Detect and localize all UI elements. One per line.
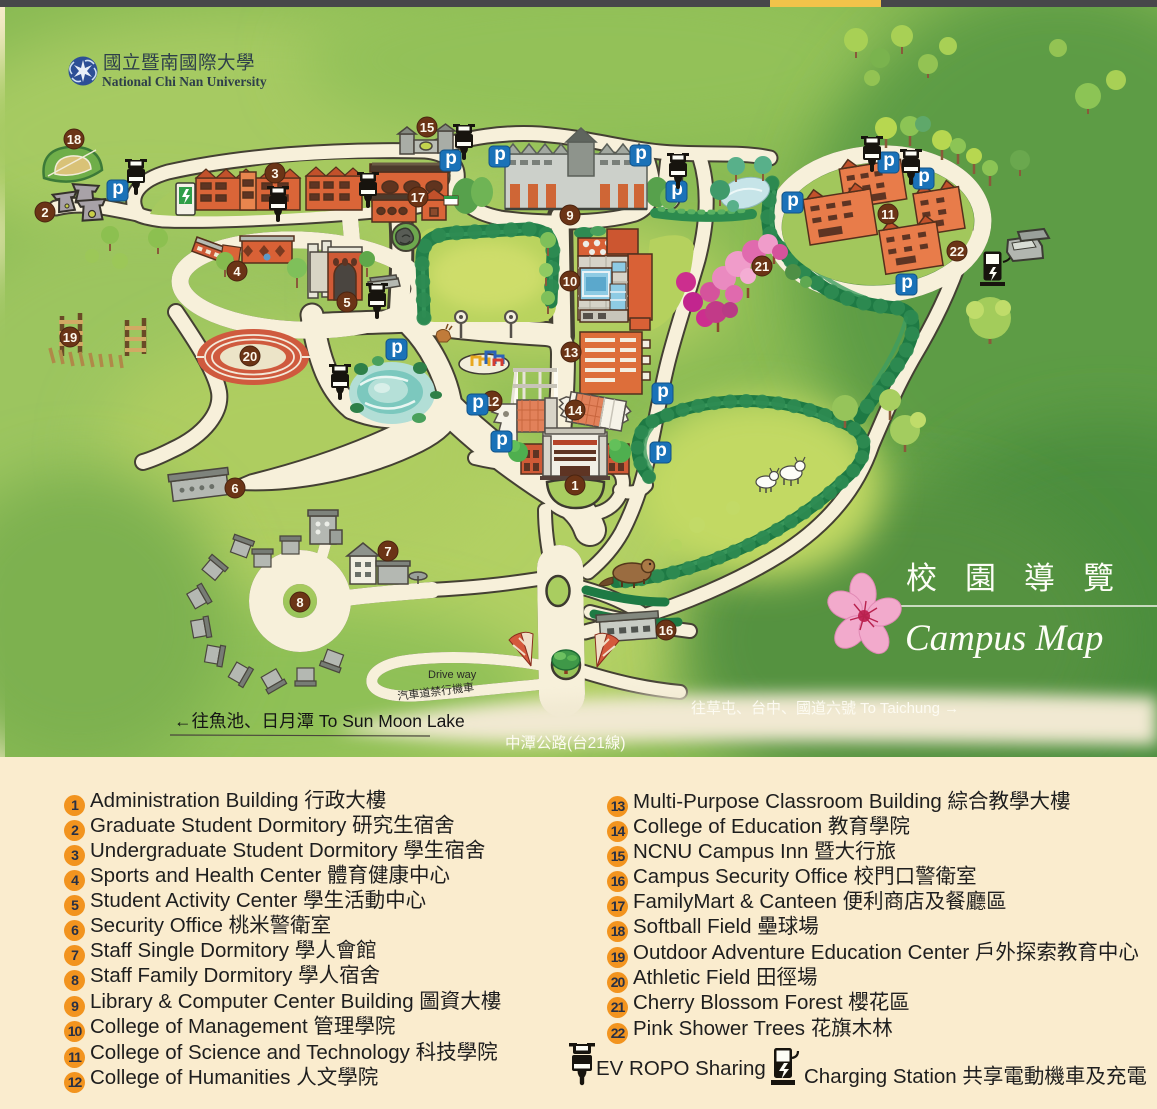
svg-text:p: p: [496, 429, 508, 450]
svg-text:20: 20: [243, 349, 257, 364]
svg-text:10: 10: [563, 274, 577, 289]
svg-text:p: p: [883, 150, 895, 171]
svg-text:17: 17: [411, 190, 425, 205]
svg-text:21: 21: [755, 259, 769, 274]
svg-text:p: p: [112, 178, 124, 199]
svg-text:7: 7: [384, 544, 391, 559]
svg-text:p: p: [494, 144, 506, 165]
svg-text:6: 6: [231, 481, 238, 496]
svg-text:p: p: [787, 190, 799, 211]
svg-text:16: 16: [659, 623, 673, 638]
svg-text:18: 18: [67, 132, 81, 147]
svg-text:p: p: [445, 148, 457, 169]
svg-text:p: p: [635, 143, 647, 164]
svg-text:往草屯、台中、國道六號 To Taichung →: 往草屯、台中、國道六號 To Taichung →: [691, 700, 959, 717]
svg-text:校園導覽: 校園導覽: [906, 561, 1142, 596]
svg-text:3: 3: [271, 166, 278, 181]
svg-text:2: 2: [41, 205, 48, 220]
svg-text:15: 15: [420, 120, 434, 135]
svg-text:Campus Map: Campus Map: [905, 618, 1103, 659]
svg-text:9: 9: [566, 208, 573, 223]
svg-text:國立暨南國際大學: 國立暨南國際大學: [103, 53, 255, 74]
svg-text:19: 19: [63, 330, 77, 345]
svg-text:14: 14: [568, 403, 583, 418]
svg-text:4: 4: [233, 264, 241, 279]
svg-text:National Chi Nan University: National Chi Nan University: [102, 74, 267, 89]
svg-text:中潭公路(台21線): 中潭公路(台21線): [505, 734, 626, 752]
svg-text:11: 11: [881, 207, 895, 222]
svg-text:Drive way: Drive way: [428, 669, 477, 681]
svg-text:p: p: [655, 440, 667, 461]
svg-text:5: 5: [343, 295, 350, 310]
svg-text:p: p: [901, 272, 913, 293]
svg-text:←往魚池、日月潭 To Sun Moon Lake: ←往魚池、日月潭 To Sun Moon Lake: [174, 711, 465, 731]
svg-text:13: 13: [564, 345, 578, 360]
svg-text:p: p: [391, 337, 403, 358]
svg-text:p: p: [657, 381, 669, 402]
svg-text:1: 1: [571, 478, 578, 493]
svg-text:22: 22: [950, 244, 964, 259]
svg-text:8: 8: [296, 595, 303, 610]
svg-text:p: p: [472, 392, 484, 413]
